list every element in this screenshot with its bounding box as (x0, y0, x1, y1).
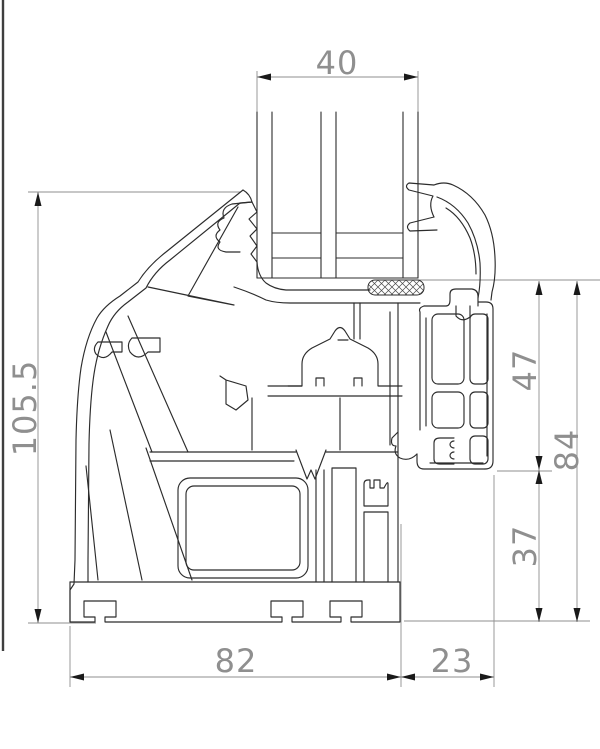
dim-label-bottom-left: 82 (215, 642, 258, 680)
frame-chamber-2 (470, 314, 488, 384)
glazing-unit (257, 112, 418, 278)
dim-label-right-upper: 47 (506, 349, 544, 392)
frame-chamber-5 (470, 436, 488, 464)
frame-clip-seal (392, 432, 418, 459)
arrow-right-icon (404, 74, 418, 81)
arrow-left-icon (401, 674, 415, 681)
dimension-labels: 40 105.5 47 84 37 82 23 (6, 44, 586, 680)
mid-chamber-bottom (150, 452, 398, 461)
glazing-bead (216, 202, 252, 252)
gasket-upper-lip (407, 183, 435, 217)
dimension-arrows (35, 74, 581, 681)
arrow-left-icon (257, 74, 271, 81)
arrow-down-icon (536, 608, 543, 622)
spacer-hatch-block (368, 280, 424, 295)
arrow-right-icon (387, 674, 401, 681)
gasket-outer-curve (434, 183, 495, 300)
frame-chamber-3 (432, 392, 464, 428)
glazing-bed-top (257, 262, 370, 290)
arrow-down-icon (536, 456, 543, 470)
arrow-up-icon (536, 470, 543, 484)
accessory-hook-2 (128, 338, 160, 357)
frame-bottom-edge (417, 454, 485, 469)
lower-chamber-webs (316, 468, 356, 582)
lower-chamber-inner (186, 486, 300, 570)
frame-chamber-1 (432, 314, 464, 384)
glass-spacer-lines (272, 233, 403, 258)
gasket-lower-lip (408, 217, 438, 231)
dim-label-top: 40 (316, 44, 359, 82)
dim-label-right-lower: 37 (506, 525, 544, 568)
hat-brim-web (252, 386, 402, 450)
arrow-up-icon (574, 281, 581, 295)
sash-profile (70, 190, 420, 622)
drawing-canvas: 40 105.5 47 84 37 82 23 (0, 0, 600, 749)
gasket-hollow (446, 208, 476, 274)
sash-mid-diagonals (106, 316, 188, 452)
lower-chamber-outer (178, 478, 308, 578)
arrow-left-icon (70, 674, 84, 681)
arrow-up-icon (536, 281, 543, 295)
dim-label-bottom-right: 23 (431, 642, 474, 680)
crown-chamber-lower (364, 512, 388, 582)
sash-peak-cap (240, 190, 252, 203)
bead-gasket (249, 202, 257, 262)
arrow-down-icon (35, 609, 42, 623)
arrow-down-icon (574, 608, 581, 622)
sash-inner-slope (88, 203, 240, 582)
bed-to-hat-webs (354, 303, 360, 339)
crown-chamber (364, 480, 388, 506)
hardware-groove (288, 328, 402, 387)
profile-drawing: 40 105.5 47 84 37 82 23 (0, 0, 600, 749)
ext-lines-left (28, 192, 240, 623)
arrow-right-icon (480, 674, 494, 681)
dim-label-right-overall: 84 (548, 429, 586, 472)
sash-latch-hook (220, 376, 248, 410)
v-drip-seal (296, 450, 326, 479)
gasket-inner-curve (437, 197, 480, 298)
screw-channel (434, 438, 454, 464)
frame-chamber-4 (470, 392, 488, 428)
frame-profile (392, 183, 496, 469)
arrow-up-icon (35, 192, 42, 206)
glass-pane-lines (257, 112, 418, 278)
frame-left-wall (420, 306, 427, 430)
frame-right-edge (485, 309, 493, 469)
dim-label-left: 105.5 (6, 360, 44, 457)
accessory-hook-1 (94, 342, 122, 358)
base-outline (70, 582, 400, 622)
